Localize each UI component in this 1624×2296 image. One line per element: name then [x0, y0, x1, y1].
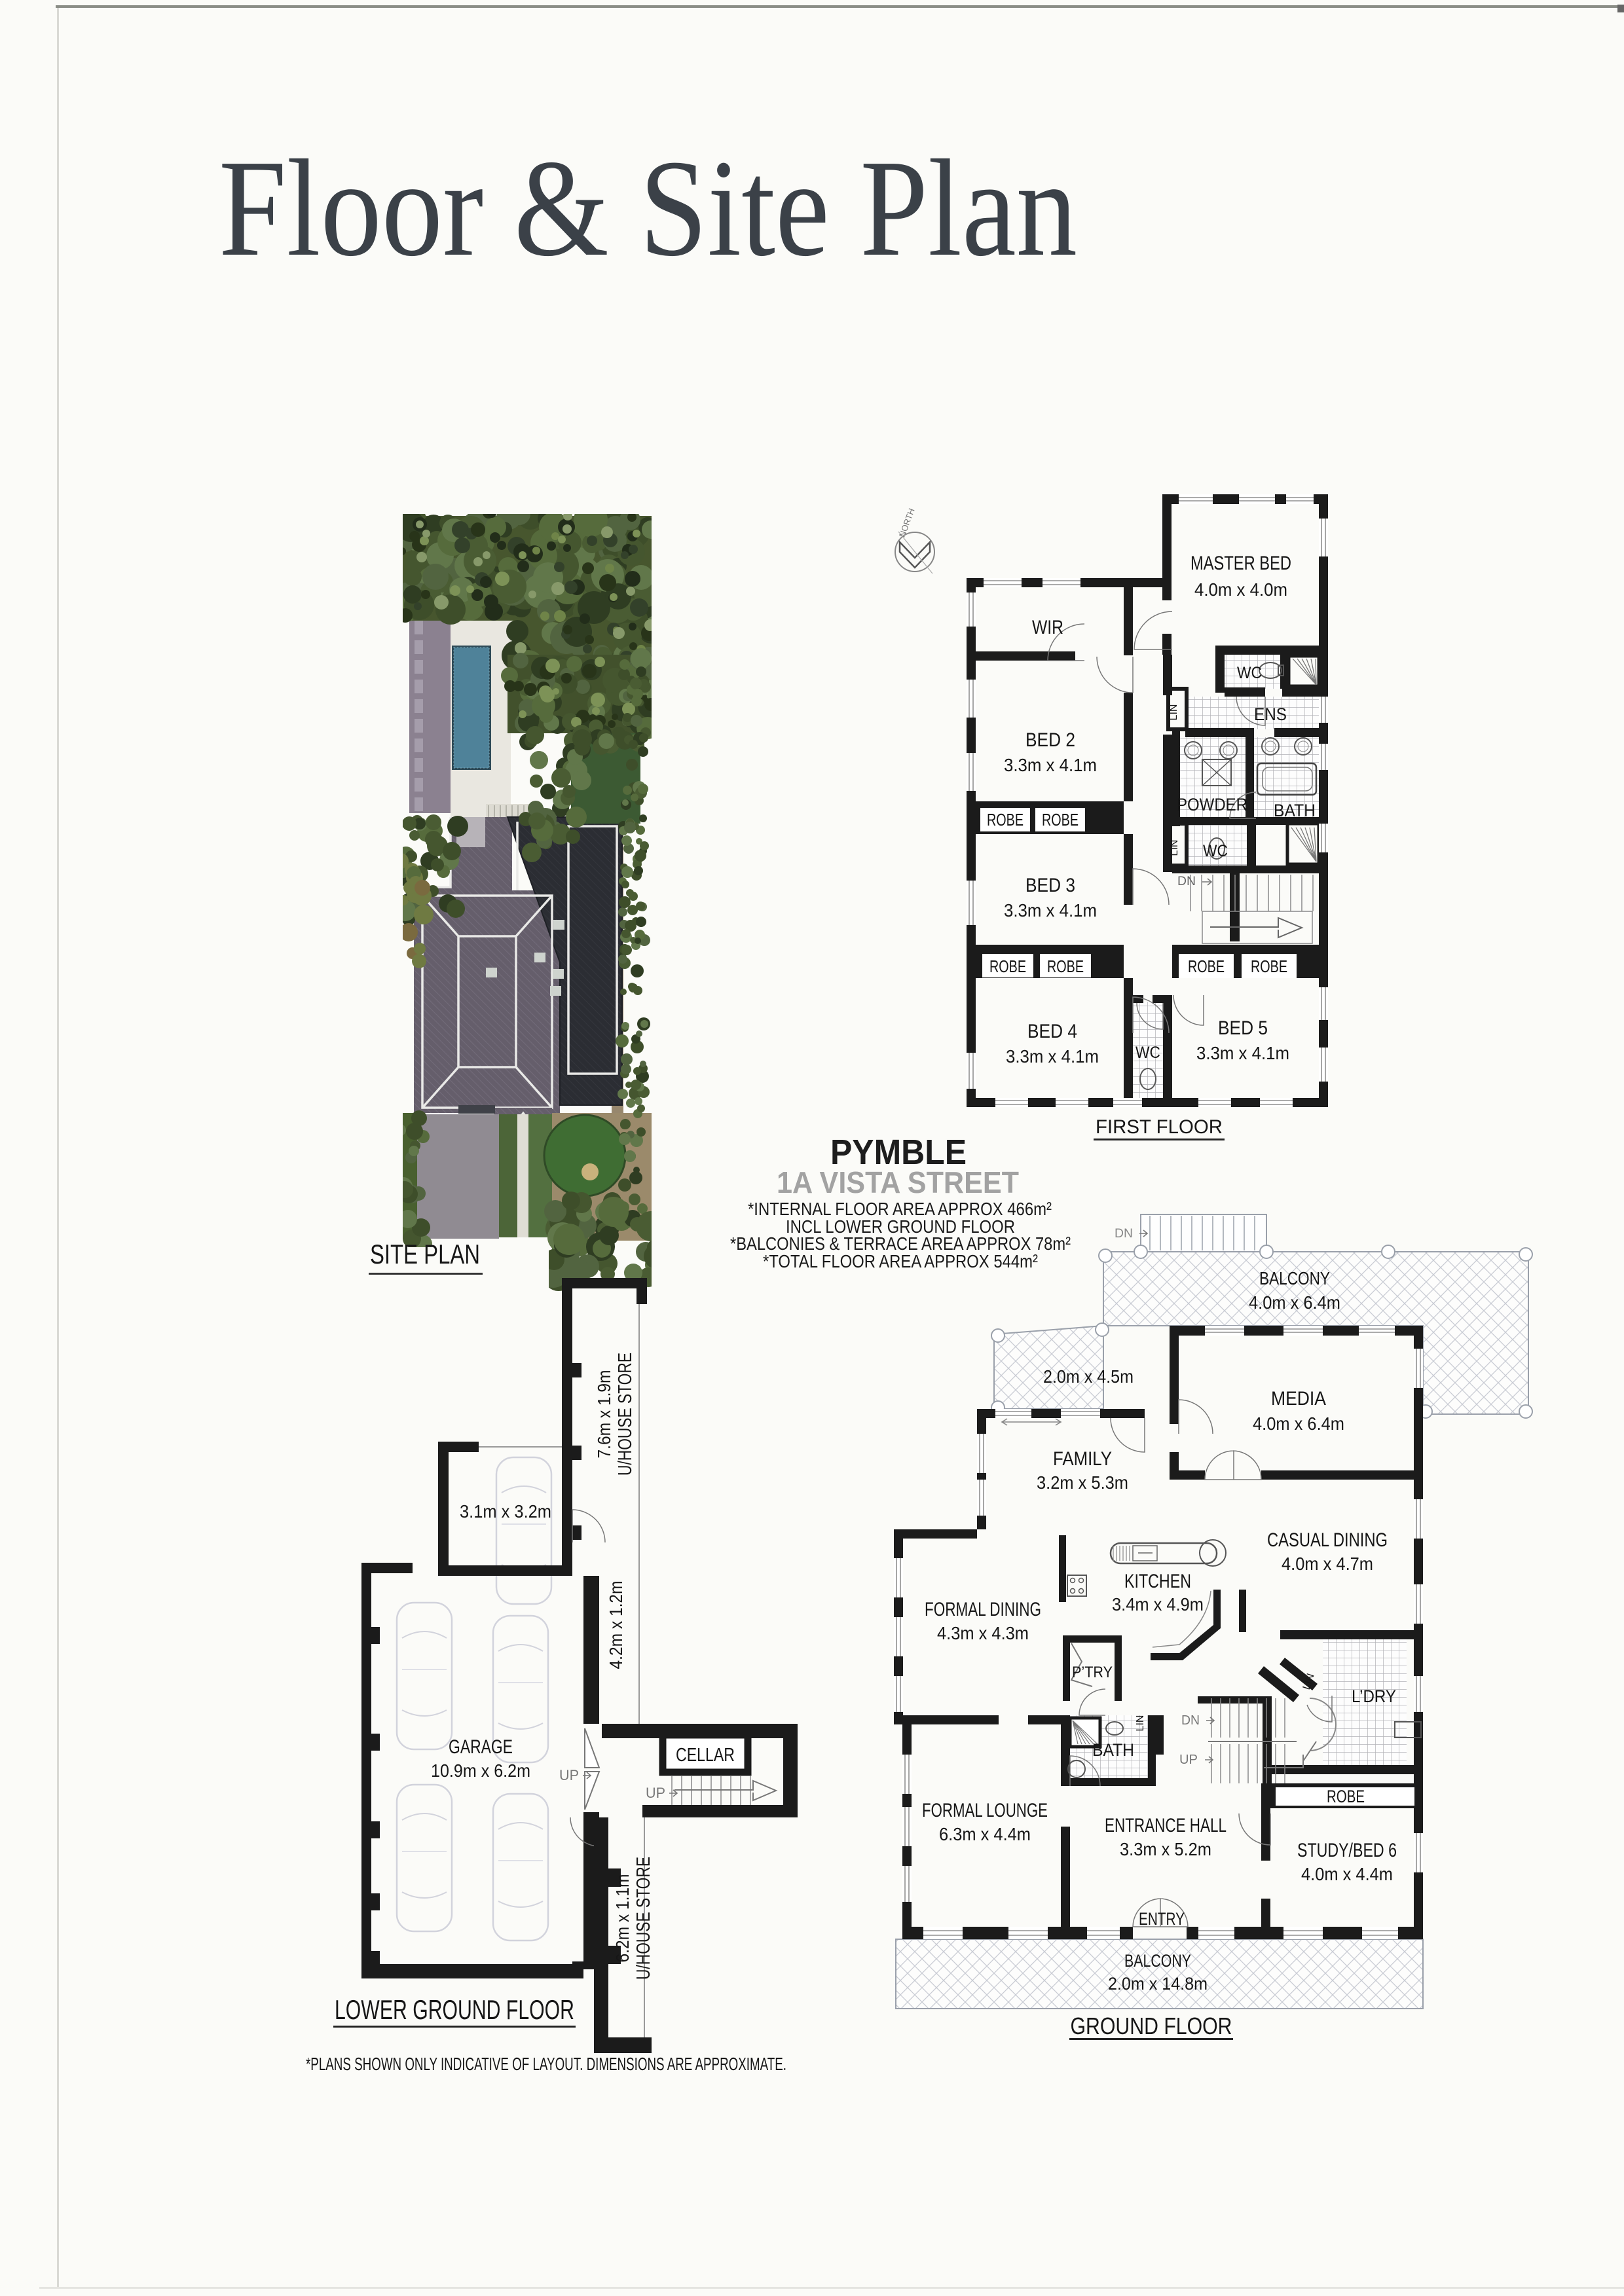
svg-text:POWDER: POWDER [1177, 795, 1247, 814]
svg-text:3.2m x 5.3m: 3.2m x 5.3m [1037, 1472, 1128, 1493]
svg-text:4.2m x 1.2m: 4.2m x 1.2m [606, 1581, 626, 1669]
svg-text:FAMILY: FAMILY [1053, 1448, 1112, 1470]
svg-text:BED 5: BED 5 [1218, 1017, 1268, 1039]
svg-text:3.4m x 4.9m: 3.4m x 4.9m [1112, 1594, 1204, 1614]
svg-text:3.3m x 4.1m: 3.3m x 4.1m [1004, 755, 1097, 775]
svg-text:*PLANS SHOWN ONLY INDICATIVE O: *PLANS SHOWN ONLY INDICATIVE OF LAYOUT. … [306, 2054, 786, 2074]
svg-text:STUDY/BED 6: STUDY/BED 6 [1297, 1840, 1397, 1861]
svg-text:10.9m x 6.2m: 10.9m x 6.2m [431, 1760, 530, 1781]
svg-text:ROBE: ROBE [1327, 1787, 1365, 1806]
svg-text:4.0m x 4.4m: 4.0m x 4.4m [1301, 1864, 1393, 1884]
svg-text:7.6m x 1.9m: 7.6m x 1.9m [594, 1370, 614, 1459]
svg-text:CELLAR: CELLAR [676, 1745, 735, 1766]
svg-text:BED 3: BED 3 [1025, 875, 1075, 896]
svg-text:WC: WC [1135, 1044, 1160, 1062]
svg-text:3.3m x 4.1m: 3.3m x 4.1m [1004, 900, 1097, 920]
svg-text:*TOTAL FLOOR AREA APPROX 544m²: *TOTAL FLOOR AREA APPROX 544m² [763, 1251, 1038, 1271]
svg-text:DN: DN [1181, 1713, 1200, 1728]
svg-text:P’TRY: P’TRY [1072, 1664, 1113, 1681]
svg-text:SITE PLAN: SITE PLAN [370, 1239, 480, 1269]
svg-text:2.0m x 14.8m: 2.0m x 14.8m [1108, 1974, 1208, 1994]
svg-text:WIR: WIR [1032, 617, 1063, 638]
svg-text:ROBE: ROBE [1251, 957, 1287, 976]
svg-text:4.3m x 4.3m: 4.3m x 4.3m [937, 1623, 1029, 1643]
svg-text:CASUAL DINING: CASUAL DINING [1267, 1529, 1388, 1551]
svg-text:4.0m x 4.7m: 4.0m x 4.7m [1282, 1554, 1373, 1574]
svg-text:ROBE: ROBE [1047, 957, 1084, 976]
svg-text:MASTER BED: MASTER BED [1190, 553, 1291, 574]
svg-text:UP: UP [559, 1767, 579, 1783]
svg-text:MEDIA: MEDIA [1271, 1388, 1326, 1410]
svg-text:DN: DN [1115, 1227, 1133, 1241]
svg-text:ROBE: ROBE [1042, 810, 1079, 829]
svg-text:3.3m x 4.1m: 3.3m x 4.1m [1196, 1043, 1289, 1063]
svg-text:BALCONY: BALCONY [1124, 1951, 1191, 1971]
svg-text:FIRST FLOOR: FIRST FLOOR [1096, 1116, 1223, 1138]
svg-text:U/HOUSE STORE: U/HOUSE STORE [633, 1857, 654, 1980]
svg-text:Floor & Site Plan: Floor & Site Plan [219, 131, 1077, 285]
svg-text:DN: DN [1177, 875, 1196, 888]
svg-text:ROBE: ROBE [989, 957, 1026, 976]
svg-text:BATH: BATH [1092, 1740, 1134, 1760]
svg-text:WC: WC [1237, 664, 1262, 682]
svg-text:UP: UP [1179, 1753, 1198, 1767]
svg-text:ROBE: ROBE [987, 810, 1024, 829]
svg-text:GROUND FLOOR: GROUND FLOOR [1071, 2013, 1232, 2039]
svg-text:4.0m x 6.4m: 4.0m x 6.4m [1249, 1292, 1340, 1313]
svg-text:6.3m x 4.4m: 6.3m x 4.4m [939, 1824, 1031, 1844]
svg-text:FORMAL DINING: FORMAL DINING [925, 1599, 1041, 1620]
svg-text:4.0m x 4.0m: 4.0m x 4.0m [1194, 579, 1287, 600]
svg-text:3.3m x 4.1m: 3.3m x 4.1m [1006, 1046, 1099, 1066]
svg-text:1A VISTA STREET: 1A VISTA STREET [777, 1165, 1019, 1199]
svg-text:LIN: LIN [1168, 704, 1179, 721]
svg-text:BED 2: BED 2 [1025, 729, 1075, 751]
svg-text:LIN: LIN [1135, 1715, 1146, 1732]
svg-text:L’DRY: L’DRY [1352, 1686, 1396, 1706]
svg-text:LOWER GROUND FLOOR: LOWER GROUND FLOOR [335, 1994, 574, 2025]
svg-text:U/HOUSE STORE: U/HOUSE STORE [615, 1353, 636, 1476]
svg-text:4.0m x 6.4m: 4.0m x 6.4m [1253, 1413, 1344, 1434]
svg-text:ENS: ENS [1254, 704, 1287, 724]
svg-text:LIN: LIN [1169, 840, 1180, 856]
svg-text:FORMAL LOUNGE: FORMAL LOUNGE [922, 1800, 1048, 1821]
svg-text:2.0m x 4.5m: 2.0m x 4.5m [1043, 1366, 1134, 1387]
svg-text:ENTRANCE HALL: ENTRANCE HALL [1105, 1815, 1227, 1836]
svg-text:BALCONY: BALCONY [1259, 1268, 1330, 1288]
svg-text:ROBE: ROBE [1188, 957, 1225, 976]
svg-text:3.3m x 5.2m: 3.3m x 5.2m [1120, 1839, 1211, 1859]
svg-text:ENTRY: ENTRY [1139, 1909, 1185, 1929]
svg-text:UP: UP [646, 1785, 665, 1801]
svg-text:GARAGE: GARAGE [449, 1736, 513, 1758]
svg-text:6.2m x 1.1m: 6.2m x 1.1m [612, 1874, 633, 1963]
svg-text:KITCHEN: KITCHEN [1124, 1571, 1191, 1592]
svg-text:3.1m x 3.2m: 3.1m x 3.2m [460, 1501, 551, 1522]
svg-text:BED 4: BED 4 [1027, 1021, 1077, 1042]
svg-text:WC: WC [1203, 842, 1228, 860]
svg-text:BATH: BATH [1274, 801, 1316, 820]
